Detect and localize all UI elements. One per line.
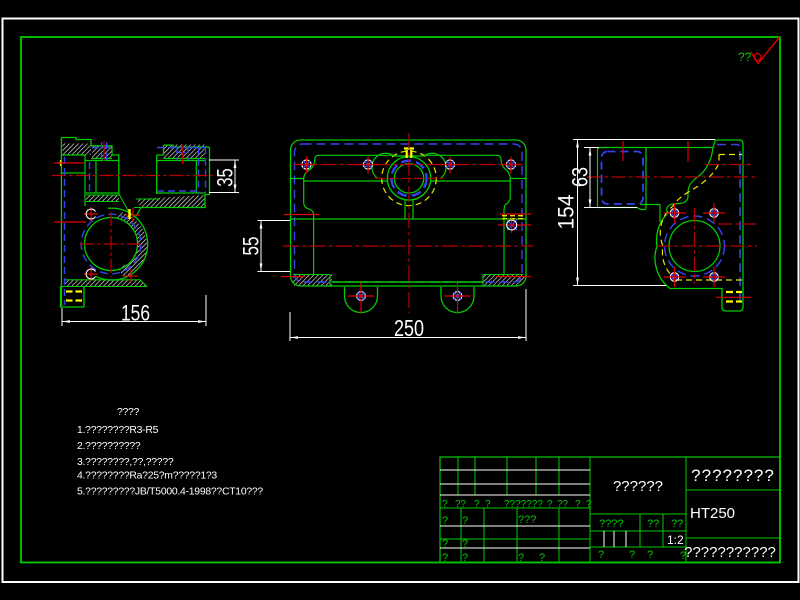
svg-text:????: ???? (117, 407, 140, 418)
svg-text:63: 63 (568, 167, 593, 187)
svg-text:?: ? (629, 549, 635, 561)
svg-text:?: ? (442, 538, 448, 550)
svg-text:???: ??? (518, 514, 536, 526)
svg-text:?: ? (462, 552, 468, 564)
svg-text:????: ???? (599, 518, 623, 530)
svg-text:?: ? (539, 552, 545, 564)
svg-text:3.????????,??,?????: 3.????????,??,????? (77, 457, 174, 468)
svg-text:??: ?? (738, 50, 752, 64)
svg-text:?: ? (462, 538, 468, 550)
svg-text:5.?????????JB/T5000.4-1998??CT: 5.?????????JB/T5000.4-1998??CT10??? (77, 487, 263, 498)
svg-text:2.??????????: 2.?????????? (77, 441, 141, 452)
svg-text:?: ? (518, 552, 524, 564)
svg-text:55: 55 (239, 237, 264, 256)
svg-text:35: 35 (213, 168, 238, 187)
svg-text:?: ? (462, 515, 468, 527)
svg-text:?: ? (442, 515, 448, 527)
svg-text:?: ? (598, 549, 604, 561)
svg-text:156: 156 (121, 301, 150, 326)
svg-text:??????: ?????? (613, 478, 663, 495)
svg-text:154: 154 (554, 195, 579, 230)
svg-text:?: ? (647, 549, 653, 561)
svg-text:HT250: HT250 (690, 505, 735, 522)
svg-text:4.????????Ra?25?m?????1?3: 4.????????Ra?25?m?????1?3 (77, 471, 217, 482)
svg-text:???????????: ??????????? (684, 544, 776, 561)
svg-text:??: ?? (647, 518, 659, 530)
svg-text:?: ? (442, 552, 448, 564)
svg-text:????????: ???????? (691, 466, 775, 485)
svg-text:??: ?? (671, 518, 683, 530)
svg-text:1.????????R3-R5: 1.????????R3-R5 (77, 425, 159, 436)
svg-text:250: 250 (394, 315, 424, 341)
svg-text:1:2: 1:2 (667, 533, 684, 547)
